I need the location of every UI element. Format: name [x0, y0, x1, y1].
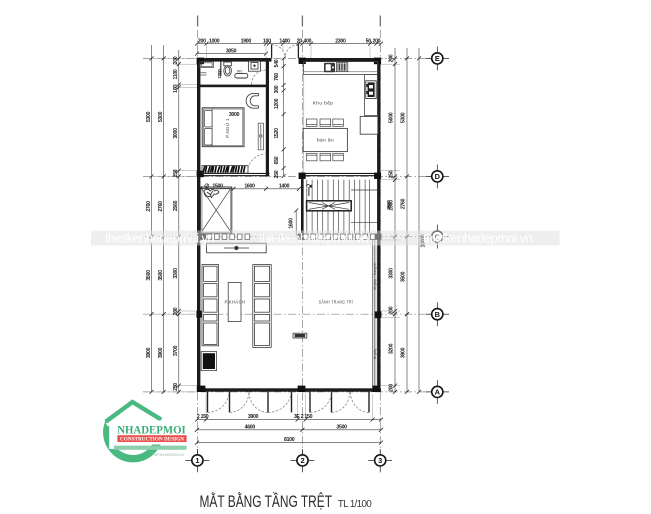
svg-text:200: 200	[173, 56, 179, 64]
svg-text:650: 650	[274, 156, 280, 164]
svg-text:3900: 3900	[146, 347, 152, 358]
svg-text:5300: 5300	[158, 111, 164, 122]
svg-text:5300: 5300	[401, 112, 407, 123]
svg-text:3E 2 150: 3E 2 150	[294, 414, 313, 420]
svg-text:MẰT BẰNG TẦNG TRỆT: MẰT BẰNG TẦNG TRỆT	[200, 492, 333, 511]
svg-text:200: 200	[389, 306, 395, 314]
svg-text:400: 400	[304, 38, 312, 44]
svg-text:100: 100	[263, 38, 271, 44]
svg-text:3500: 3500	[146, 270, 152, 281]
svg-text:200: 200	[198, 38, 206, 44]
svg-text:2760: 2760	[158, 201, 164, 212]
svg-text:3000: 3000	[229, 112, 240, 118]
svg-text:CONSTRUCTION DESIGN: CONSTRUCTION DESIGN	[120, 437, 184, 443]
svg-text:THIETKENHADEPMOI.VN: THIETKENHADEPMOI.VN	[152, 453, 184, 457]
svg-text:3900: 3900	[401, 347, 407, 358]
svg-text:300: 300	[274, 85, 280, 93]
svg-text:3500: 3500	[336, 424, 347, 430]
svg-text:1600: 1600	[244, 184, 255, 190]
svg-text:wc: wc	[237, 69, 243, 74]
svg-text:2760: 2760	[146, 201, 152, 212]
svg-text:3700: 3700	[173, 345, 179, 356]
svg-text:1200: 1200	[274, 98, 280, 109]
svg-text:1200: 1200	[217, 69, 222, 79]
svg-text:50: 50	[366, 38, 372, 44]
svg-text:thietkenhadepmoi.vn: thietkenhadepmoi.vn	[423, 230, 533, 245]
svg-text:1900: 1900	[241, 38, 252, 44]
svg-text:D: D	[435, 172, 441, 181]
svg-text:E: E	[435, 54, 440, 63]
svg-text:1000: 1000	[209, 38, 220, 44]
svg-text:tủ giày + trang trí: tủ giày + trang trí	[373, 262, 377, 289]
svg-text:250: 250	[173, 383, 179, 391]
svg-text:1500: 1500	[212, 184, 223, 190]
svg-text:3300: 3300	[389, 268, 395, 279]
svg-text:thietkenhadepmoi.vn: thietkenhadepmoi.vn	[259, 230, 369, 245]
svg-text:8100: 8100	[284, 437, 295, 443]
svg-text:tủ giày: tủ giày	[373, 349, 377, 360]
svg-text:3900: 3900	[158, 347, 164, 358]
svg-text:2: 2	[300, 456, 304, 465]
svg-text:100: 100	[173, 85, 179, 93]
svg-text:3200: 3200	[389, 343, 395, 354]
svg-text:1400: 1400	[279, 38, 290, 44]
svg-text:1400: 1400	[279, 184, 290, 190]
svg-text:2300: 2300	[335, 38, 346, 44]
svg-text:250: 250	[173, 169, 179, 177]
svg-text:3: 3	[378, 456, 382, 465]
svg-text:1600: 1600	[288, 218, 294, 229]
svg-text:thietkenhadepmoi.vn: thietkenhadepmoi.vn	[105, 230, 215, 245]
svg-text:250: 250	[389, 170, 395, 178]
svg-text:200: 200	[373, 38, 381, 44]
svg-text:3300: 3300	[173, 268, 179, 279]
svg-text:1100: 1100	[173, 69, 179, 79]
svg-text:2560: 2560	[386, 200, 391, 210]
svg-text:5000: 5000	[389, 112, 395, 123]
svg-text:3000: 3000	[173, 128, 179, 139]
svg-text:NHADEPMOI: NHADEPMOI	[117, 424, 186, 436]
svg-text:3900: 3900	[248, 414, 259, 420]
svg-text:760: 760	[274, 73, 280, 81]
svg-text:bàn ăn: bàn ăn	[317, 138, 334, 144]
svg-text:200: 200	[173, 307, 179, 315]
svg-text:B: B	[435, 310, 440, 319]
svg-text:P.NGỦ 1: P.NGỦ 1	[225, 118, 230, 138]
svg-text:2560: 2560	[173, 200, 179, 211]
svg-text:2760: 2760	[401, 198, 407, 209]
svg-text:200: 200	[389, 384, 395, 392]
svg-text:250: 250	[274, 170, 280, 178]
svg-text:Khu bếp: Khu bếp	[313, 101, 334, 107]
svg-text:3500: 3500	[401, 271, 407, 282]
svg-text:1: 1	[195, 456, 199, 465]
svg-text:3500: 3500	[158, 270, 164, 281]
svg-text:SẢNH TRANG TRÍ: SẢNH TRANG TRÍ	[319, 300, 354, 305]
svg-text:1520: 1520	[274, 128, 280, 139]
svg-text:TL 1/100: TL 1/100	[338, 499, 372, 510]
svg-text:4600: 4600	[245, 424, 256, 430]
svg-text:3050: 3050	[226, 48, 237, 54]
svg-text:2 150: 2 150	[197, 414, 209, 420]
svg-text:P.KHÁCH: P.KHÁCH	[225, 300, 246, 305]
svg-text:5300: 5300	[146, 111, 152, 122]
svg-text:A: A	[435, 388, 441, 397]
svg-text:540: 540	[274, 59, 280, 67]
svg-text:20: 20	[297, 38, 303, 44]
svg-text:200: 200	[389, 54, 395, 62]
